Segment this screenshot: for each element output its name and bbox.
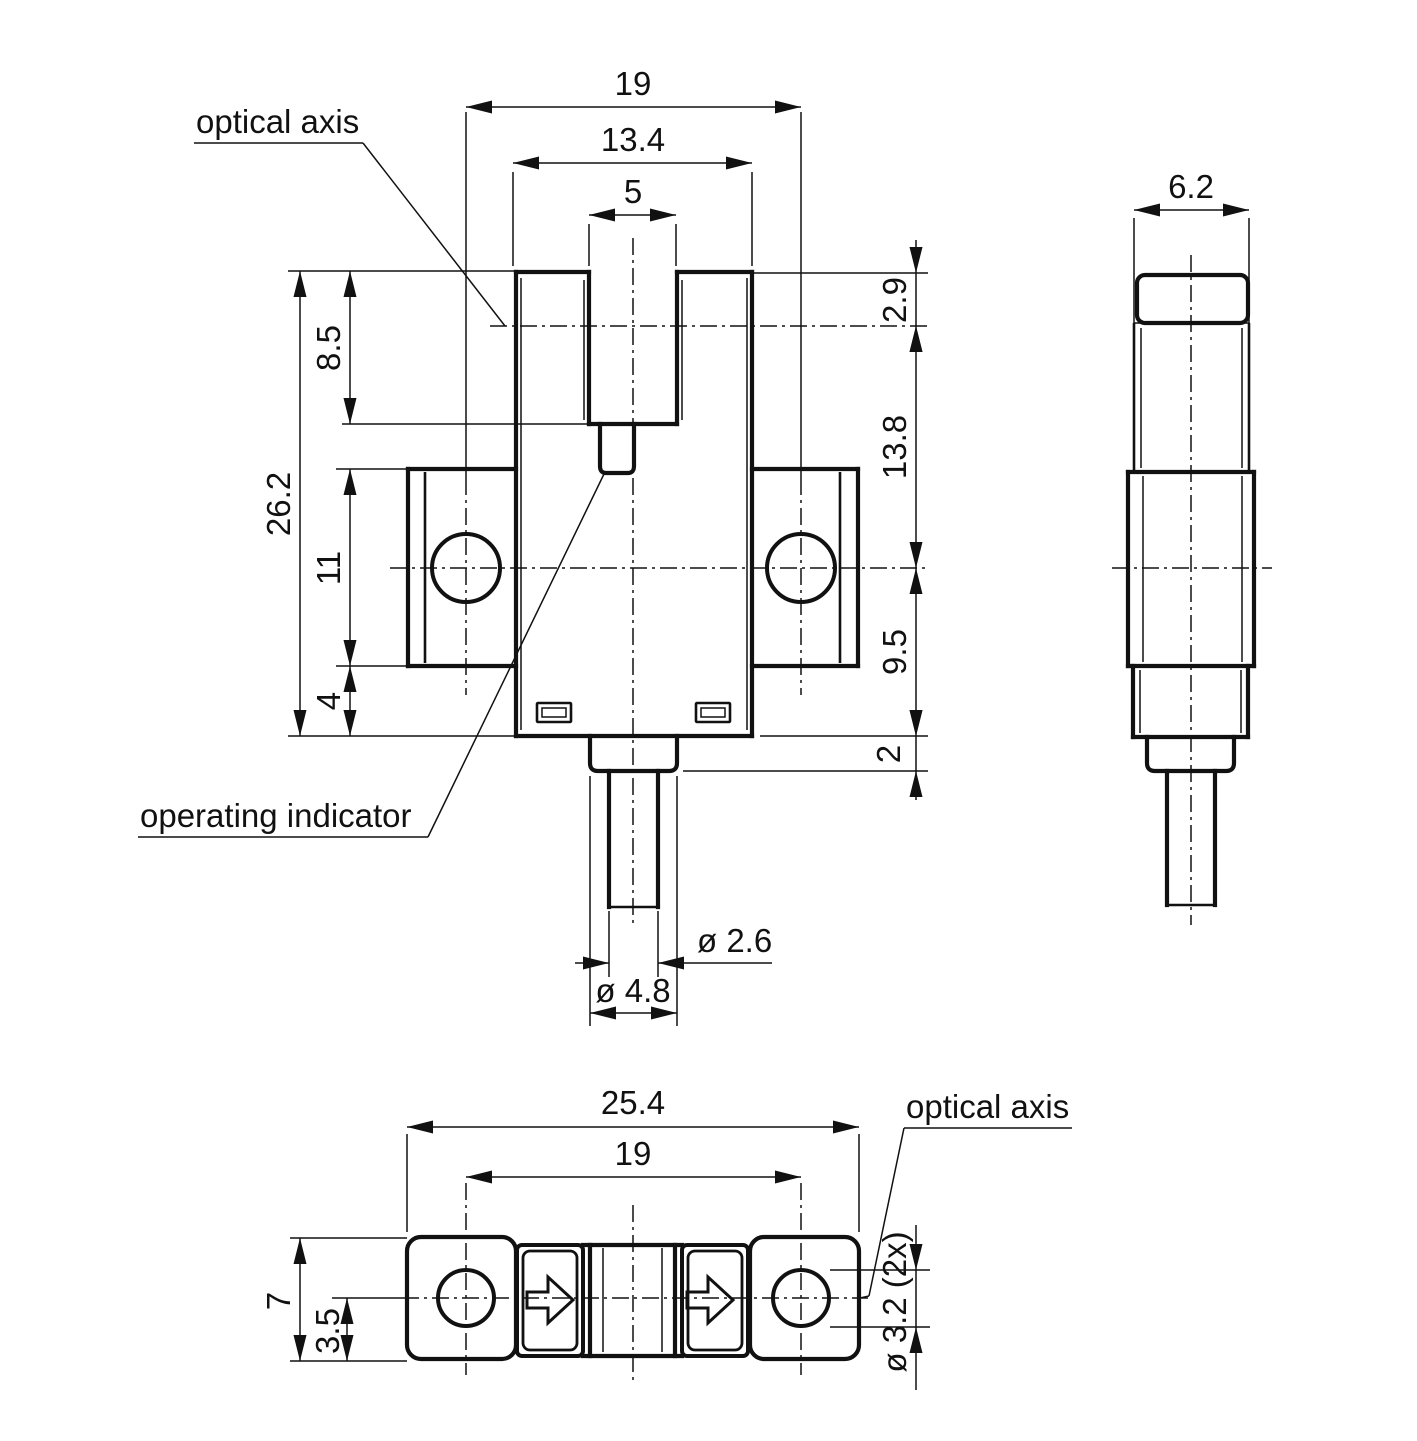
dimension-arrowhead [466, 101, 492, 114]
dimension-arrowhead [658, 957, 684, 970]
dim-fv-body-width: 13.4 [601, 121, 665, 158]
dim-fv-slot-depth: 8.5 [310, 325, 347, 371]
dim-fv-below-flange: 4 [310, 692, 347, 710]
dimension-arrowhead [583, 957, 609, 970]
dim-bv-total-length: 25.4 [601, 1084, 665, 1121]
dim-fv-hole-spacing: 19 [615, 65, 652, 102]
operating-indicator-right-inner [701, 708, 725, 717]
dimension-arrowhead [910, 326, 923, 352]
operating-indicator-left-inner [542, 708, 566, 717]
dimension-arrowhead [910, 771, 923, 797]
light-direction-arrow-right [687, 1277, 733, 1323]
dimension-arrowhead [407, 1121, 433, 1134]
dimension-arrowhead [650, 209, 676, 222]
dimension-arrowhead [1134, 204, 1160, 217]
dim-fv-collar-step: 2 [870, 745, 907, 763]
dimension-arrowhead [344, 398, 357, 424]
dimension-arrowhead [344, 469, 357, 495]
dimension-arrowhead [589, 209, 615, 222]
receiver-window-outer [682, 1245, 748, 1356]
drawing-page: 1913.45optical axisoperating indicator26… [0, 0, 1417, 1441]
dimension-arrowhead [344, 666, 357, 692]
dimension-arrowhead [726, 157, 752, 170]
dim-sv-depth: 6.2 [1168, 168, 1214, 205]
technical-drawing-sensor-three-views: 1913.45optical axisoperating indicator26… [0, 0, 1417, 1441]
emitter-tab-outline [600, 424, 634, 473]
emitter-window-inner [523, 1251, 577, 1350]
dimension-arrowhead [910, 710, 923, 736]
light-direction-arrow-left [527, 1277, 573, 1323]
dim-fv-cable-dia: ø 2.6 [697, 922, 772, 959]
side-view-cap [1137, 275, 1248, 323]
dimension-arrowhead [294, 1238, 307, 1264]
dim-fv-collar-dia: ø 4.8 [595, 972, 670, 1009]
dim-bv-axis-offset: 3.5 [309, 1308, 346, 1354]
dimension-arrowhead [910, 247, 923, 273]
dim-bv-hole-dia: ø 3.2 (2x) [876, 1231, 913, 1372]
dim-fv-slot-width: 5 [624, 173, 642, 210]
dim-fv-top-to-axis: 2.9 [876, 277, 913, 323]
dim-bv-height: 7 [260, 1292, 297, 1310]
label-optical-axis-bottom: optical axis [906, 1088, 1069, 1125]
extension-or-dimension-line [363, 143, 505, 326]
dimension-arrowhead [513, 157, 539, 170]
dimension-arrowhead [294, 1335, 307, 1361]
dimension-arrowhead [294, 271, 307, 297]
dim-fv-flange-height: 11 [310, 551, 347, 585]
dim-bv-hole-spacing: 19 [615, 1135, 652, 1172]
dimension-arrowhead [775, 101, 801, 114]
dimension-arrowhead [466, 1171, 492, 1184]
dimension-arrowhead [344, 271, 357, 297]
label-optical-axis-top: optical axis [196, 103, 359, 140]
dimension-arrowhead [833, 1121, 859, 1134]
dimension-arrowhead [294, 710, 307, 736]
dimension-arrowhead [344, 710, 357, 736]
dim-fv-hole-to-bottom: 9.5 [876, 629, 913, 675]
dimension-arrowhead [1223, 204, 1249, 217]
label-operating-indicator: operating indicator [140, 797, 412, 834]
dimension-arrowhead [910, 568, 923, 594]
dimension-arrowhead [775, 1171, 801, 1184]
dimension-arrowhead [910, 542, 923, 568]
dimension-arrowhead [344, 640, 357, 666]
dim-fv-total-height: 26.2 [260, 472, 297, 536]
dim-fv-axis-to-hole: 13.8 [876, 415, 913, 479]
